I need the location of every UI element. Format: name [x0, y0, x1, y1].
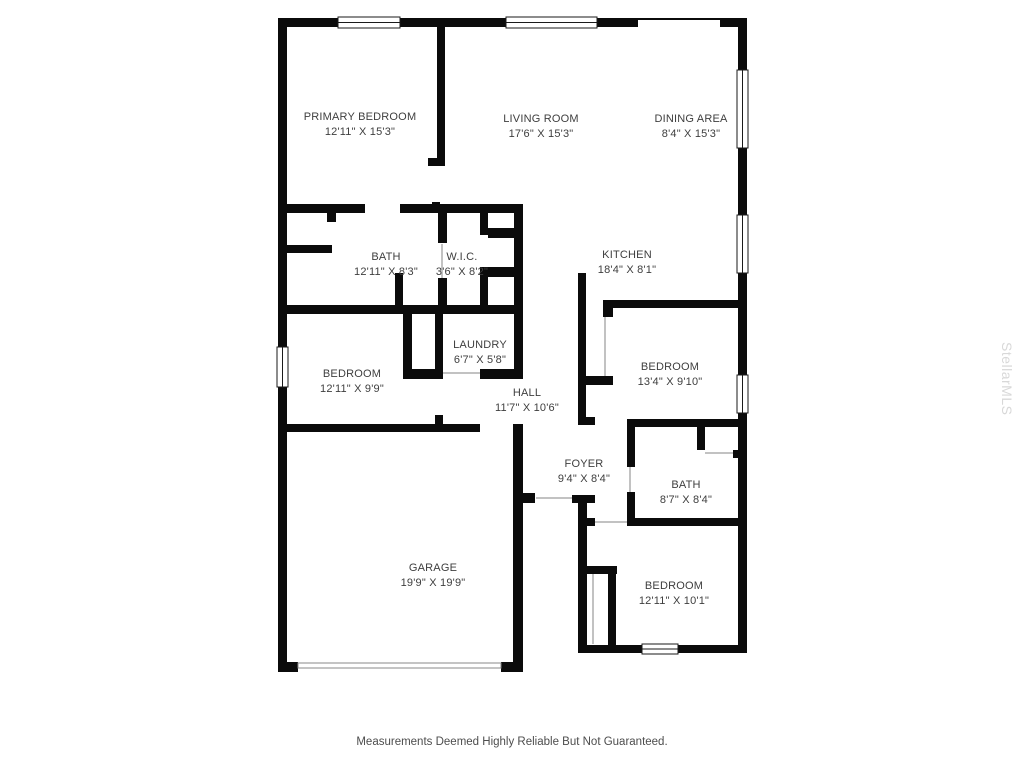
room-label-bedroom-east: BEDROOM — [641, 361, 699, 373]
room-dims-wic: 3'6" X 8'2" — [436, 266, 488, 278]
wall-segment — [480, 369, 523, 379]
wall-segment — [488, 267, 517, 277]
wall-segment — [738, 18, 747, 70]
wall-segment — [278, 245, 332, 253]
wall-segment — [480, 213, 488, 235]
watermark: StellarMLS — [999, 342, 1015, 415]
wall-segment — [578, 645, 642, 653]
wall-segment — [627, 419, 746, 427]
wall-segment — [733, 450, 742, 458]
wall-segment — [278, 18, 287, 347]
sliding-door-icon — [638, 18, 720, 20]
wall-segment — [738, 413, 747, 653]
door-opening-line — [443, 372, 480, 374]
wall-segment — [578, 273, 586, 425]
wall-segment — [578, 417, 595, 425]
wall-segment — [523, 493, 535, 503]
wall-segment — [278, 305, 523, 314]
room-dims-bedroom-south: 12'11" X 10'1" — [639, 595, 709, 607]
wall-segment — [627, 518, 746, 526]
room-dims-laundry: 6'7" X 5'8" — [454, 354, 506, 366]
floor-plan: PRIMARY BEDROOM12'11" X 15'3"LIVING ROOM… — [0, 0, 1024, 768]
room-label-bedroom-west: BEDROOM — [323, 368, 381, 380]
wall-segment — [278, 662, 298, 672]
wall-segment — [572, 495, 595, 503]
room-label-bedroom-south: BEDROOM — [645, 580, 703, 592]
room-label-kitchen: KITCHEN — [602, 249, 652, 261]
room-dims-dining-area: 8'4" X 15'3" — [662, 128, 720, 140]
wall-segment — [400, 18, 506, 27]
wall-segment — [627, 419, 635, 467]
room-dims-hall: 11'7" X 10'6" — [495, 402, 559, 414]
room-dims-foyer: 9'4" X 8'4" — [558, 473, 610, 485]
wall-segment — [403, 369, 443, 379]
garage-door-icon — [298, 663, 501, 668]
room-dims-kitchen: 18'4" X 8'1" — [598, 264, 656, 276]
wall-segment — [578, 518, 595, 526]
wall-segment — [278, 18, 338, 27]
disclaimer-text: Measurements Deemed Highly Reliable But … — [0, 736, 1024, 748]
room-dims-primary-bedroom: 12'11" X 15'3" — [325, 126, 395, 138]
room-label-foyer: FOYER — [565, 458, 604, 470]
room-label-primary-bedroom: PRIMARY BEDROOM — [304, 111, 417, 123]
door-opening-line — [629, 467, 631, 492]
wall-segment — [678, 645, 747, 653]
room-label-hall: HALL — [513, 387, 541, 399]
wall-segment — [435, 415, 443, 424]
door-opening-line — [536, 497, 572, 499]
wall-segment — [435, 314, 443, 369]
room-dims-bath-primary: 12'11" X 8'3" — [354, 266, 418, 278]
room-label-bath-primary: BATH — [371, 251, 400, 263]
door-opening-line — [595, 521, 627, 523]
wall-segment — [738, 148, 747, 215]
wall-segment — [603, 300, 613, 317]
room-dims-bedroom-west: 12'11" X 9'9" — [320, 383, 384, 395]
wall-segment — [586, 376, 613, 385]
wall-segment — [400, 204, 523, 213]
wall-segment — [514, 204, 523, 379]
wall-segment — [278, 204, 365, 213]
wall-segment — [603, 300, 746, 308]
wall-segment — [501, 662, 523, 672]
wall-segment — [488, 228, 517, 238]
wall-segment — [697, 427, 705, 450]
wall-segment — [513, 424, 523, 672]
wall-segment — [327, 213, 336, 222]
room-label-garage: GARAGE — [409, 562, 457, 574]
wall-segment — [738, 273, 747, 375]
room-label-living-room: LIVING ROOM — [503, 113, 579, 125]
door-opening-line — [705, 452, 733, 454]
room-dims-garage: 19'9" X 19'9" — [401, 577, 466, 589]
wall-segment — [437, 27, 445, 165]
room-dims-bedroom-east: 13'4" X 9'10" — [638, 376, 703, 388]
wall-segment — [608, 566, 616, 645]
room-label-bath-hall: BATH — [671, 479, 700, 491]
floor-plan-svg: PRIMARY BEDROOM12'11" X 15'3"LIVING ROOM… — [0, 0, 1024, 768]
wall-segment — [278, 424, 480, 432]
door-opening-line — [604, 317, 606, 376]
room-label-wic: W.I.C. — [446, 251, 477, 263]
wall-segment — [428, 158, 445, 166]
wall-segment — [597, 18, 638, 27]
room-label-laundry: LAUNDRY — [453, 339, 507, 351]
wall-segment — [438, 213, 447, 243]
room-label-dining-area: DINING AREA — [654, 113, 728, 125]
room-dims-living-room: 17'6" X 15'3" — [509, 128, 574, 140]
door-opening-line — [592, 574, 594, 644]
room-dims-bath-hall: 8'7" X 8'4" — [660, 494, 712, 506]
